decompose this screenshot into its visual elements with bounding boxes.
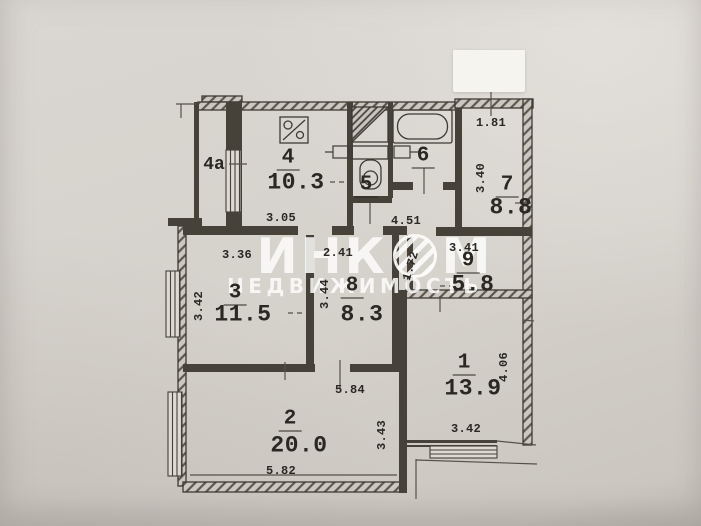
dim-5-82: 5.82 — [266, 465, 296, 477]
room-2-area: 20.0 — [270, 435, 327, 458]
room-6-number: 6 — [412, 146, 435, 169]
room-9-area: 5.8 — [452, 274, 495, 297]
floor-plan-photo: ИНК М НЕДВИЖИМОСТЬ 4а 4 10.3 5 6 7 8.8 9… — [0, 0, 701, 526]
dim-3-40: 3.40 — [475, 163, 487, 193]
stove-icon — [280, 117, 308, 143]
room-1-number: 1 — [453, 353, 476, 376]
dim-3-43: 3.43 — [376, 420, 388, 450]
dim-5-84: 5.84 — [335, 384, 365, 396]
dim-4-06: 4.06 — [498, 352, 510, 382]
paper-sticker — [453, 50, 525, 92]
sink-icon — [352, 107, 388, 142]
dim-3-42-bottom: 3.42 — [451, 423, 481, 435]
room-8-area: 8.3 — [341, 304, 384, 327]
dim-1-81: 1.81 — [476, 117, 506, 129]
room-7-area: 8.8 — [490, 197, 533, 220]
dim-3-44: 3.44 — [319, 279, 331, 309]
room-3-area: 11.5 — [214, 304, 271, 327]
room-5-number: 5 — [355, 175, 378, 198]
dim-3-41: 3.41 — [449, 242, 479, 254]
room-4-number: 4 — [277, 148, 300, 171]
room-2-number: 2 — [279, 409, 302, 432]
room-4a-number: 4а — [203, 156, 225, 174]
bathtub-icon — [393, 110, 452, 143]
dim-3-36: 3.36 — [222, 249, 252, 261]
room-8-number: 8 — [341, 276, 364, 299]
room-4-area: 10.3 — [267, 172, 324, 195]
dim-4-51: 4.51 — [391, 215, 421, 227]
room-1-area: 13.9 — [444, 378, 501, 401]
dim-3-05: 3.05 — [266, 212, 296, 224]
dim-3-42-left: 3.42 — [193, 291, 205, 321]
wall-cabinet-icons — [325, 146, 421, 158]
dim-2-41: 2.41 — [323, 247, 353, 259]
